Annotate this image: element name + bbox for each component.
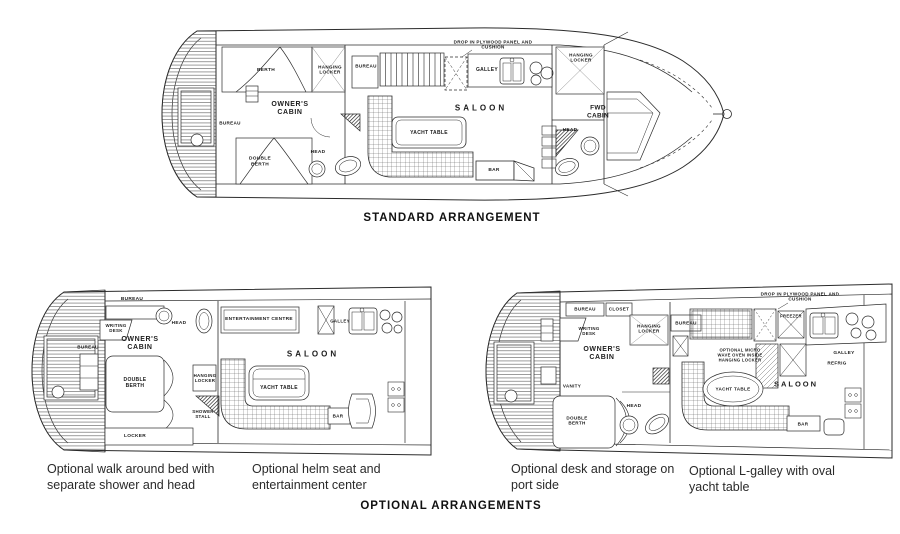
stairs xyxy=(380,53,444,86)
label-bar: BAR xyxy=(481,168,507,174)
label-or-vanity: VANITY xyxy=(552,383,592,388)
label-or-head: HEAD xyxy=(621,404,647,410)
label-ol-bureau-top: BUREAU xyxy=(112,297,152,303)
label-ol-owners-cabin: OWNER'S CABIN xyxy=(116,336,164,353)
label-or-owners-cabin: OWNER'S CABIN xyxy=(578,346,626,363)
label-or-drop-in-panel: DROP IN PLYWOOD PANEL AND CUSHION xyxy=(753,292,848,303)
label-drop-in-panel: DROP IN PLYWOOD PANEL AND CUSHION xyxy=(446,40,541,51)
cabin-dresser xyxy=(246,86,258,102)
label-yacht-table: YACHT TABLE xyxy=(397,131,461,137)
label-head-fwd: HEAD xyxy=(557,128,583,134)
label-ol-writing-desk: WRITING DESK xyxy=(100,323,132,333)
optional-right-plan-drawing xyxy=(486,284,892,458)
deck-hatch-ring xyxy=(191,134,203,146)
v-berth xyxy=(607,92,660,160)
label-or-galley: GALLEY xyxy=(824,351,864,357)
standard-plan-drawing xyxy=(162,28,732,200)
label-saloon: SALOON xyxy=(436,103,526,112)
stove-burner xyxy=(380,310,390,320)
label-ol-double-berth: DOUBLE BERTH xyxy=(117,378,153,390)
label-or-refrig: REFRIG xyxy=(817,360,857,365)
floorplan-drawings xyxy=(0,0,900,534)
label-or-microwave-note: OPTIONAL MICRO WAVE OVEN INSIDE HANGING … xyxy=(715,349,765,364)
toilet xyxy=(620,416,638,434)
bureau-cabinet xyxy=(352,56,378,88)
vanity-cabinet xyxy=(541,367,556,384)
label-or-bureau-top: BUREAU xyxy=(565,306,605,311)
toilet xyxy=(309,161,325,177)
label-ol-head: HEAD xyxy=(166,321,192,327)
label-hanging-locker-fwd: HANGING LOCKER xyxy=(563,53,599,64)
basin-oval xyxy=(642,410,672,438)
caption-l-galley: Optional L-galley with oval yacht table xyxy=(689,463,864,495)
label-ol-shower-stall: SHOWER STALL xyxy=(188,409,218,419)
bureau-top-cabinet xyxy=(106,306,164,319)
label-berth: BERTH xyxy=(246,68,286,74)
standard-aft-deck xyxy=(162,31,216,197)
standard-arrangement-title: STANDARD ARRANGEMENT xyxy=(363,212,540,224)
label-ol-saloon: SALOON xyxy=(268,349,358,358)
label-ol-yacht-table: YACHT TABLE xyxy=(250,386,308,392)
label-fwd-cabin: FWD CABIN xyxy=(582,104,614,119)
optional-left-plan-drawing xyxy=(32,287,431,455)
standard-companionway xyxy=(352,53,444,88)
caption-desk-storage: Optional desk and storage on port side xyxy=(511,461,676,493)
label-or-hanging-locker: HANGING LOCKER xyxy=(632,324,666,335)
label-or-saloon: SALOON xyxy=(756,381,836,390)
label-or-bureau-fwd: BUREAU xyxy=(666,320,706,325)
fwd-toilet xyxy=(581,137,599,155)
label-or-bar: BAR xyxy=(791,421,815,426)
fwd-shower-hatched xyxy=(556,130,578,156)
label-ol-hanging-locker: HANGING LOCKER xyxy=(190,373,220,383)
yacht-table xyxy=(249,366,309,400)
label-ol-locker: LOCKER xyxy=(115,434,155,440)
label-ol-galley: GALLEY xyxy=(324,318,356,323)
bureau-left-cabinet xyxy=(80,354,98,390)
caption-walkaround-bed: Optional walk around bed with separate s… xyxy=(47,461,237,493)
steps-hatched xyxy=(653,368,669,384)
label-or-freezer: FREEZER xyxy=(771,315,811,320)
basin-oval xyxy=(333,153,363,178)
optional-left-saloon xyxy=(221,306,404,429)
optional-arrangements-title: OPTIONAL ARRANGEMENTS xyxy=(360,500,541,512)
label-head-aft: HEAD xyxy=(303,150,333,156)
brochure-page: BERTH HANGING LOCKER BUREAU DROP IN PLYW… xyxy=(0,0,900,534)
label-galley: GALLEY xyxy=(470,68,504,74)
shower-hatched xyxy=(341,114,360,131)
label-or-writing-desk: WRITING DESK xyxy=(574,326,604,336)
label-hanging-locker-aft: HANGING LOCKER xyxy=(312,65,348,76)
label-double-berth: DOUBLE BERTH xyxy=(242,156,278,167)
label-bureau-aft: BUREAU xyxy=(210,120,250,125)
label-or-closet: CLOSET xyxy=(602,306,636,311)
standard-aft-head xyxy=(309,114,363,179)
label-owners-cabin: OWNER'S CABIN xyxy=(265,101,315,118)
label-ol-entertainment: ENTERTAINMENT CENTRE xyxy=(217,317,301,323)
label-or-yacht-table: YACHT TABLE xyxy=(707,386,759,391)
label-bureau-mid: BUREAU xyxy=(346,63,386,68)
label-or-double-berth: DOUBLE BERTH xyxy=(560,416,594,427)
label-ol-bar: BAR xyxy=(326,413,350,418)
caption-helm-seat: Optional helm seat and entertainment cen… xyxy=(252,461,402,493)
seat xyxy=(824,419,844,435)
label-ol-bureau-left: BUREAU xyxy=(68,344,108,349)
